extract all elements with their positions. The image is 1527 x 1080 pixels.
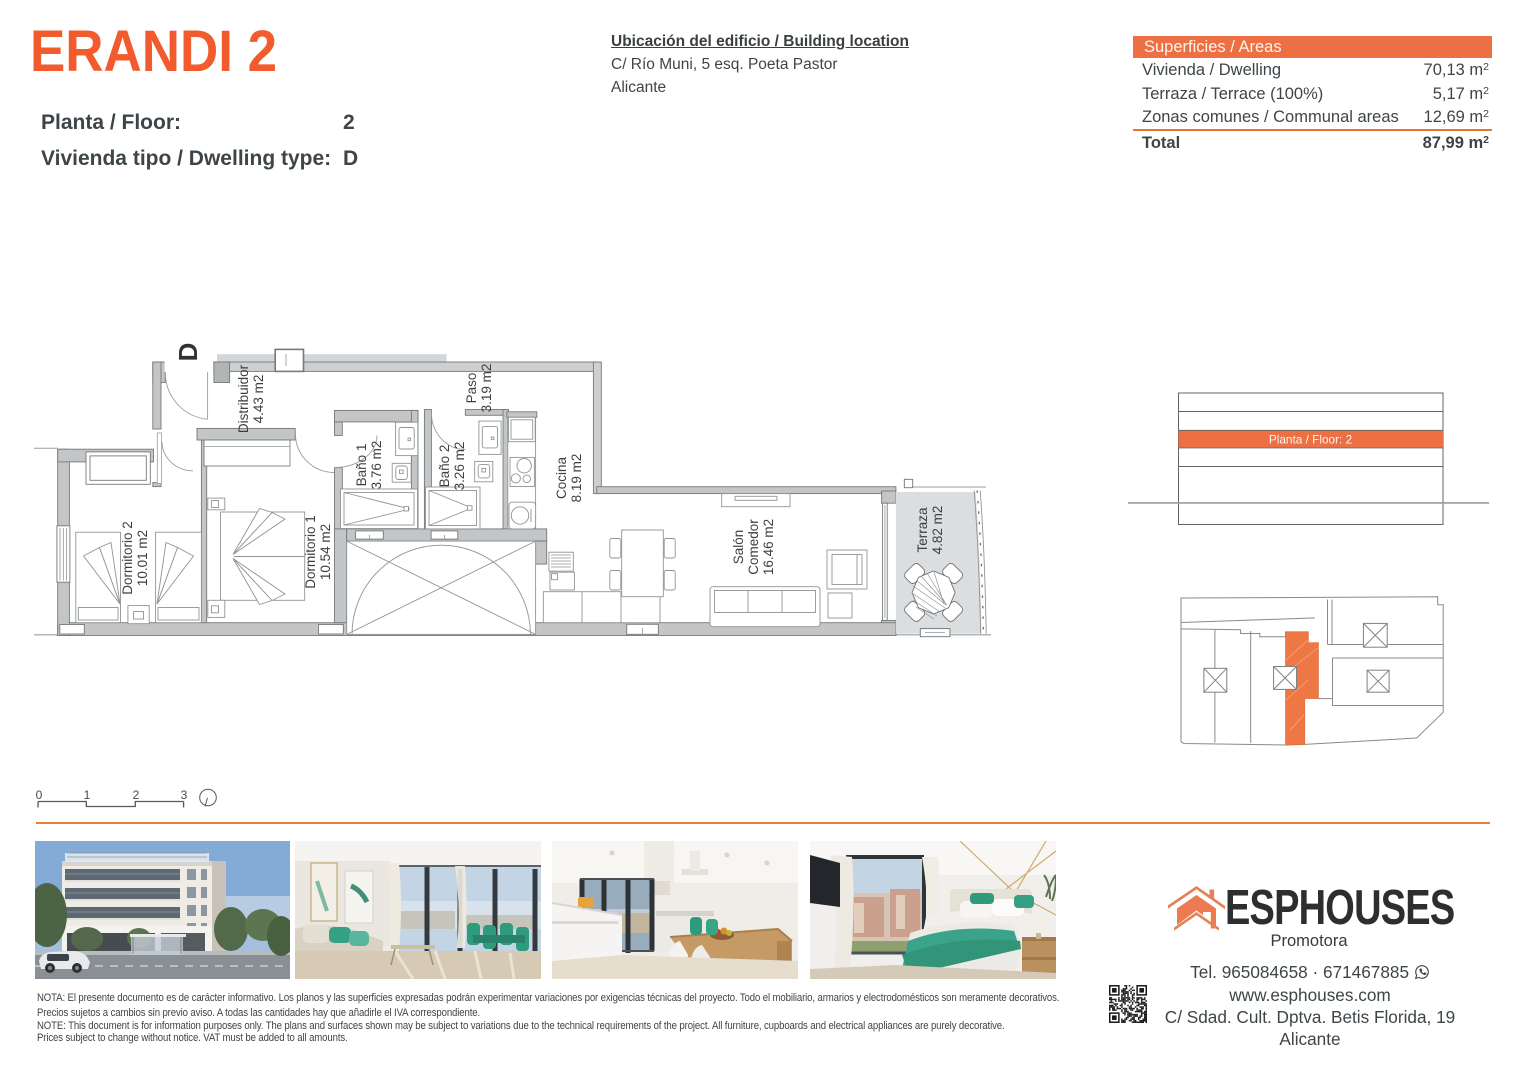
svg-text:4.43 m2: 4.43 m2 xyxy=(251,375,266,424)
svg-text:0: 0 xyxy=(36,788,43,802)
svg-text:3.26 m2: 3.26 m2 xyxy=(452,442,467,491)
svg-text:Baño 1: Baño 1 xyxy=(354,444,369,487)
svg-text:10.54 m2: 10.54 m2 xyxy=(318,524,333,580)
svg-text:1: 1 xyxy=(84,788,91,802)
svg-text:Dormitorio 1: Dormitorio 1 xyxy=(303,515,318,589)
svg-text:Cocina: Cocina xyxy=(554,457,569,500)
svg-text:Paso: Paso xyxy=(464,373,479,404)
svg-text:Baño 2: Baño 2 xyxy=(437,445,452,488)
svg-text:Dormitorio 2: Dormitorio 2 xyxy=(120,521,135,595)
svg-text:D: D xyxy=(173,343,203,362)
svg-text:16.46 m2: 16.46 m2 xyxy=(761,519,776,575)
svg-text:2: 2 xyxy=(133,788,140,802)
svg-text:Terraza: Terraza xyxy=(915,507,930,553)
svg-text:3.19 m2: 3.19 m2 xyxy=(479,364,494,413)
svg-text:8.19 m2: 8.19 m2 xyxy=(569,454,584,503)
svg-text:Planta / Floor: 2: Planta / Floor: 2 xyxy=(1269,433,1352,447)
svg-text:3.76 m2: 3.76 m2 xyxy=(369,441,384,490)
svg-text:4.82 m2: 4.82 m2 xyxy=(930,506,945,555)
svg-text:Comedor: Comedor xyxy=(746,519,761,575)
svg-text:Salón: Salón xyxy=(731,530,746,565)
svg-text:3: 3 xyxy=(181,788,188,802)
svg-text:10.01 m2: 10.01 m2 xyxy=(135,530,150,586)
svg-text:Distribuidor: Distribuidor xyxy=(236,364,251,433)
